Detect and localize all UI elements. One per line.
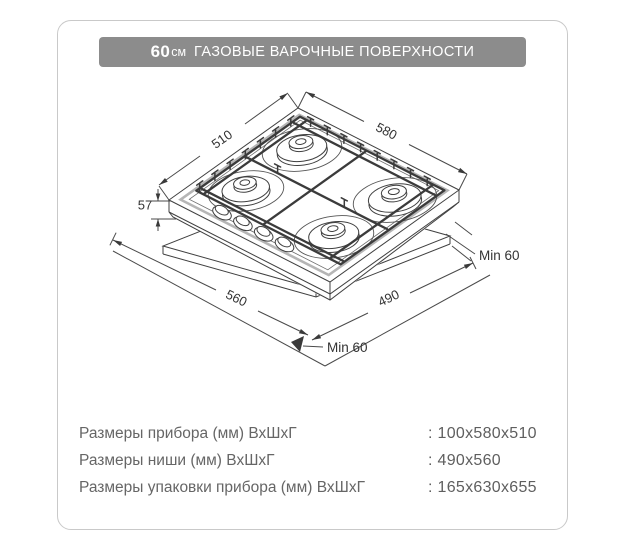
min-clearance-bottom: Min 60 <box>291 336 368 355</box>
dim-label-57: 57 <box>138 197 152 212</box>
min-clearance-right: Min 60 <box>446 222 520 263</box>
hob-technical-drawing: 510 580 57 560 <box>0 0 625 550</box>
dim-label-490: 490 <box>376 287 402 310</box>
dim-label-580: 580 <box>373 119 399 142</box>
min-60-bottom-label: Min 60 <box>327 340 368 355</box>
dim-label-510: 510 <box>209 127 235 152</box>
dim-label-560: 560 <box>223 287 249 310</box>
spec-sheet-page: 60 см ГАЗОВЫЕ ВАРОЧНЫЕ ПОВЕРХНОСТИ Разме… <box>0 0 625 550</box>
min-60-right-label: Min 60 <box>479 248 520 263</box>
